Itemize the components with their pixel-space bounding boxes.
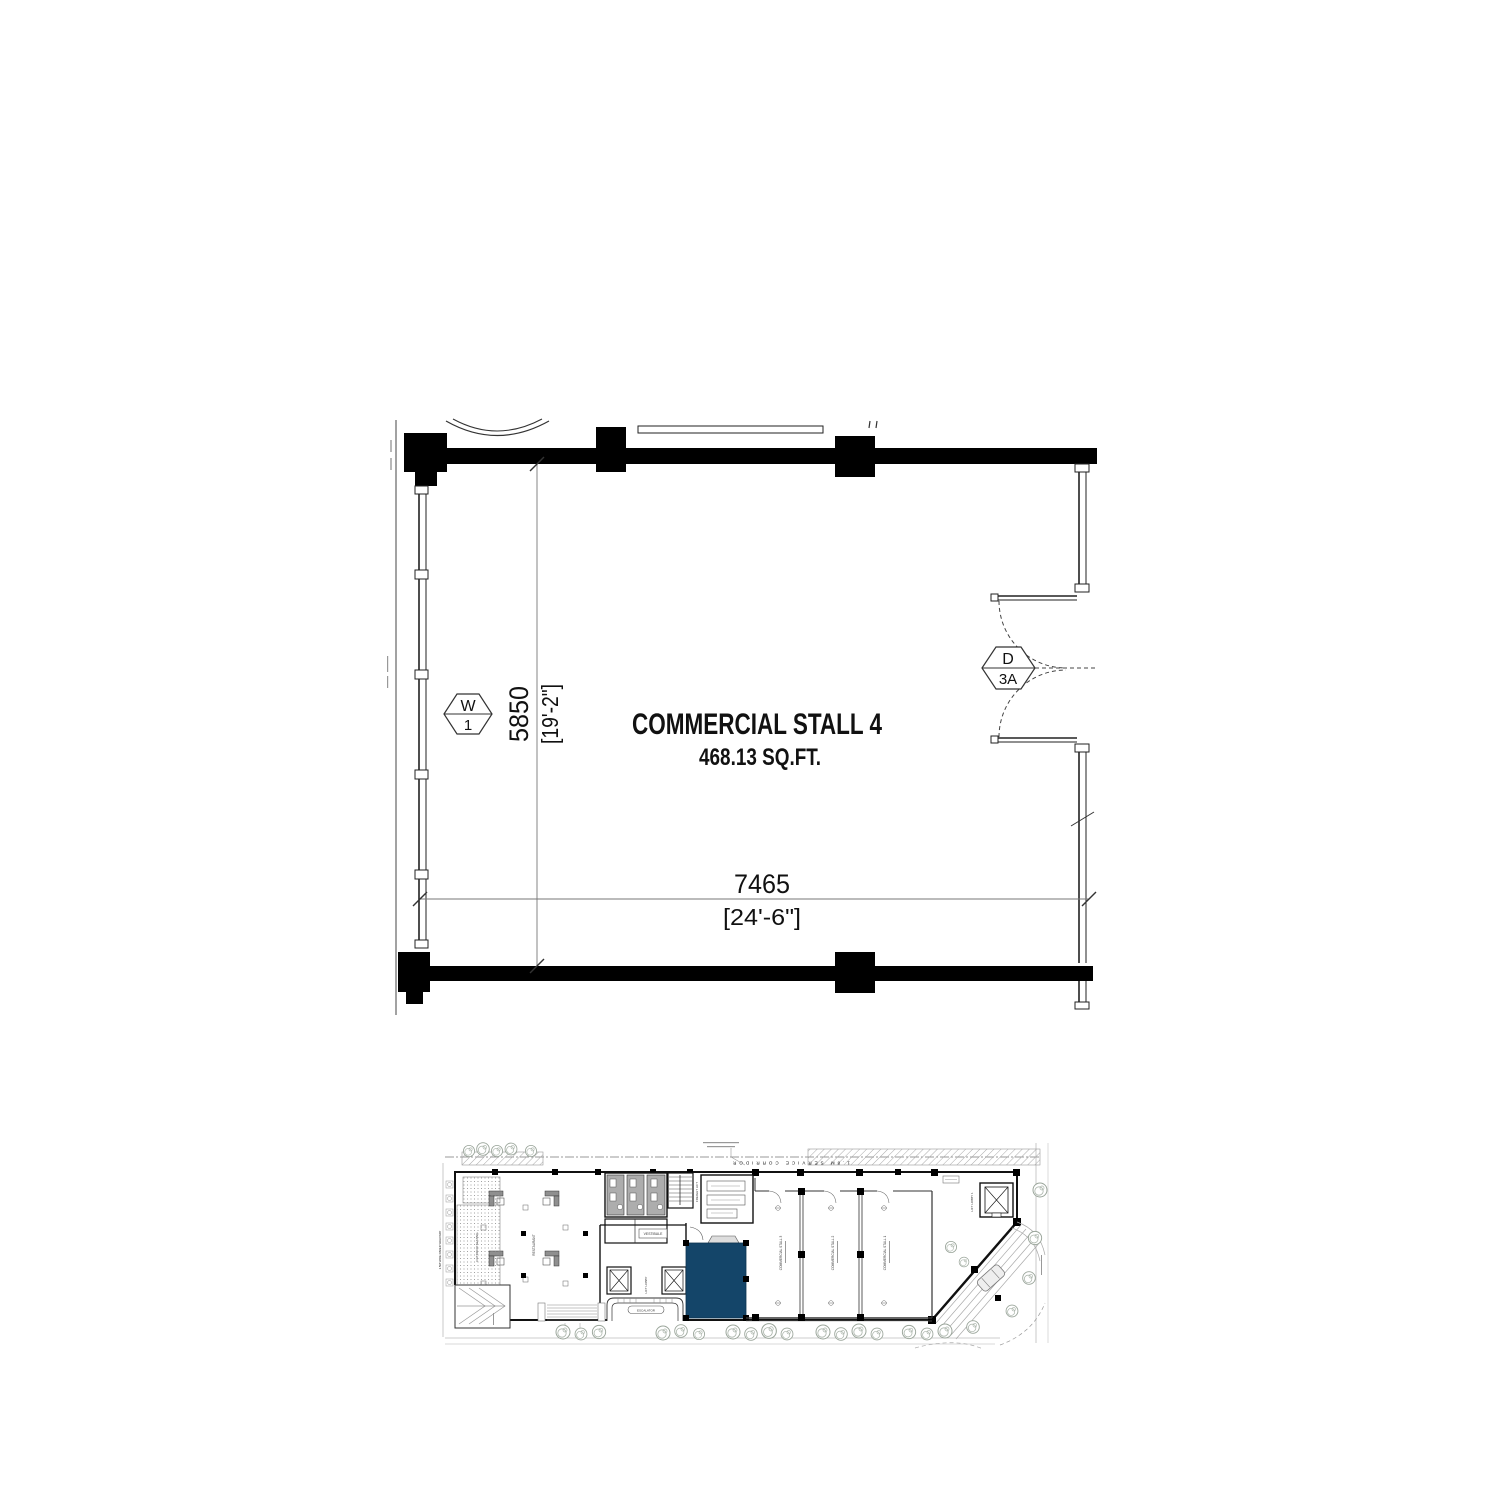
floor-plan-sheet: 5850 [19'-2"] 7465 [24'-6"] W 1 D 3A COM… bbox=[0, 0, 1500, 1500]
tree bbox=[871, 1328, 883, 1340]
tree bbox=[959, 1257, 969, 1267]
tree bbox=[902, 1325, 915, 1338]
column-tab bbox=[415, 472, 437, 486]
tree bbox=[726, 1325, 740, 1339]
tree bbox=[762, 1324, 777, 1339]
mullion bbox=[415, 870, 428, 879]
escalator: ESCALATOR bbox=[607, 1298, 683, 1321]
ramp-label-scribble bbox=[493, 1313, 494, 1325]
entry-door-arc bbox=[824, 1191, 836, 1203]
vehicle-ramp bbox=[455, 1285, 510, 1328]
terrace-label: OUTDOOR SEATING bbox=[475, 1232, 479, 1262]
lift-lobby-label: LIFT LOBBY bbox=[644, 1277, 648, 1294]
stall4-vestibule bbox=[708, 1236, 739, 1243]
window-tag: W 1 bbox=[444, 694, 492, 734]
exterior-wall-bottom bbox=[398, 966, 1093, 981]
tree bbox=[693, 1328, 704, 1339]
planters bbox=[446, 1181, 453, 1286]
tree bbox=[477, 1143, 490, 1156]
highlighted-stall-4 bbox=[683, 1236, 749, 1321]
entry-door-arc bbox=[877, 1191, 889, 1203]
column bbox=[404, 433, 447, 472]
stall-label: COMMERCIAL STALL 1 bbox=[883, 1236, 887, 1271]
drawing-svg: 5850 [19'-2"] 7465 [24'-6"] W 1 D 3A COM… bbox=[0, 0, 1500, 1500]
main-plan: 5850 [19'-2"] 7465 [24'-6"] W 1 D 3A COM… bbox=[387, 419, 1097, 1015]
tree bbox=[491, 1145, 502, 1156]
column bbox=[398, 952, 430, 992]
dim-height-imperial: [19'-2"] bbox=[537, 684, 563, 744]
mullion bbox=[1075, 584, 1089, 592]
room-area: 468.13 SQ.FT. bbox=[699, 744, 821, 771]
escalator-label: ESCALATOR bbox=[637, 1308, 656, 1312]
stall-label: COMMERCIAL STALL 3 bbox=[779, 1236, 783, 1271]
wall-columns bbox=[492, 1169, 1021, 1324]
door-tag-number: 3A bbox=[999, 671, 1017, 688]
tree bbox=[945, 1241, 956, 1252]
margin-note-scribble bbox=[387, 676, 388, 688]
mullion bbox=[415, 670, 428, 679]
lift-box bbox=[662, 1267, 686, 1294]
tree bbox=[463, 1145, 474, 1156]
stall-label: COMMERCIAL STALL 2 bbox=[831, 1236, 835, 1271]
plaza-column bbox=[995, 1295, 1001, 1301]
tree bbox=[938, 1324, 952, 1338]
door-jamb-top bbox=[991, 594, 1077, 601]
stall4-highlight bbox=[686, 1243, 746, 1318]
freight-lift-label: FREIGHT LIFT bbox=[695, 1182, 699, 1202]
tree bbox=[675, 1325, 688, 1338]
slab-edge-band bbox=[638, 426, 823, 433]
electrical-room bbox=[701, 1175, 753, 1223]
lift-box bbox=[607, 1267, 631, 1294]
tree bbox=[556, 1325, 570, 1339]
mullion bbox=[1075, 744, 1089, 752]
tree bbox=[1033, 1183, 1047, 1197]
lift-lobby-1: LIFT LOBBY 1 bbox=[943, 1176, 1013, 1217]
dim-vertical: 5850 [19'-2"] bbox=[504, 457, 563, 973]
restaurant-label: RESTAURANT bbox=[532, 1234, 536, 1255]
tree bbox=[816, 1325, 830, 1339]
window-tag-letter: W bbox=[460, 698, 476, 715]
tree bbox=[1006, 1305, 1018, 1317]
tree bbox=[525, 1145, 536, 1156]
mullion bbox=[1075, 464, 1089, 472]
tree bbox=[921, 1328, 933, 1340]
break-tick bbox=[1071, 812, 1094, 826]
margin-note-scribble bbox=[387, 656, 388, 672]
dim-width-mm: 7465 bbox=[734, 869, 790, 899]
tree bbox=[1023, 1272, 1036, 1285]
stalls: COMMERCIAL STALL 3 COMMERCIAL STALL 2 CO… bbox=[746, 1178, 932, 1321]
mullion bbox=[415, 940, 428, 948]
window-tag-number: 1 bbox=[464, 717, 472, 734]
tree bbox=[967, 1321, 980, 1334]
mullion bbox=[1075, 1002, 1089, 1009]
dim-width-imperial: [24'-6"] bbox=[723, 904, 801, 930]
column bbox=[835, 436, 875, 477]
mullion bbox=[415, 570, 428, 579]
walkway-label: 1.5M WIDE PAVED WALKWAY bbox=[438, 1230, 442, 1269]
door-jamb-bottom bbox=[991, 736, 1077, 743]
column bbox=[835, 952, 875, 993]
tree bbox=[835, 1328, 848, 1341]
top-annotation bbox=[703, 1142, 745, 1165]
column bbox=[596, 427, 626, 472]
door-tag-letter: D bbox=[1002, 651, 1014, 668]
stair bbox=[668, 1173, 693, 1208]
tick-mark bbox=[876, 421, 877, 428]
service-corridor-label: 1.8M SERVICE CORRIDOR bbox=[730, 1161, 850, 1166]
dim-height-mm: 5850 bbox=[504, 686, 534, 742]
room-title: COMMERCIAL STALL 4 bbox=[632, 708, 882, 741]
tree bbox=[656, 1326, 670, 1340]
tree bbox=[505, 1143, 517, 1155]
lift-lobby1-label: LIFT LOBBY 1 bbox=[970, 1192, 974, 1212]
tree bbox=[852, 1324, 866, 1338]
storefront-left bbox=[415, 486, 428, 948]
tick-mark bbox=[869, 421, 870, 428]
tree bbox=[781, 1328, 793, 1340]
tree bbox=[592, 1325, 605, 1338]
mullion bbox=[415, 486, 428, 494]
entry-door-arc bbox=[769, 1191, 781, 1203]
tree bbox=[575, 1328, 587, 1340]
terrace: OUTDOOR SEATING 1.5M WIDE PAVED WALKWAY bbox=[438, 1177, 500, 1286]
car bbox=[976, 1263, 1006, 1292]
canopy-arc-inner bbox=[453, 419, 542, 431]
storefront-right-upper bbox=[1075, 464, 1089, 592]
door-arc bbox=[690, 1227, 703, 1240]
vestibule-label: VESTIBULE bbox=[644, 1232, 663, 1236]
key-plan: 1.8M SERVICE CORRIDOR bbox=[438, 1142, 1048, 1349]
road-label-scribble bbox=[1041, 1255, 1042, 1275]
dim-horizontal: 7465 [24'-6"] bbox=[413, 869, 1096, 930]
column-tab bbox=[406, 992, 423, 1004]
mullion bbox=[415, 770, 428, 779]
tree bbox=[745, 1328, 758, 1341]
tree bbox=[1028, 1231, 1041, 1244]
